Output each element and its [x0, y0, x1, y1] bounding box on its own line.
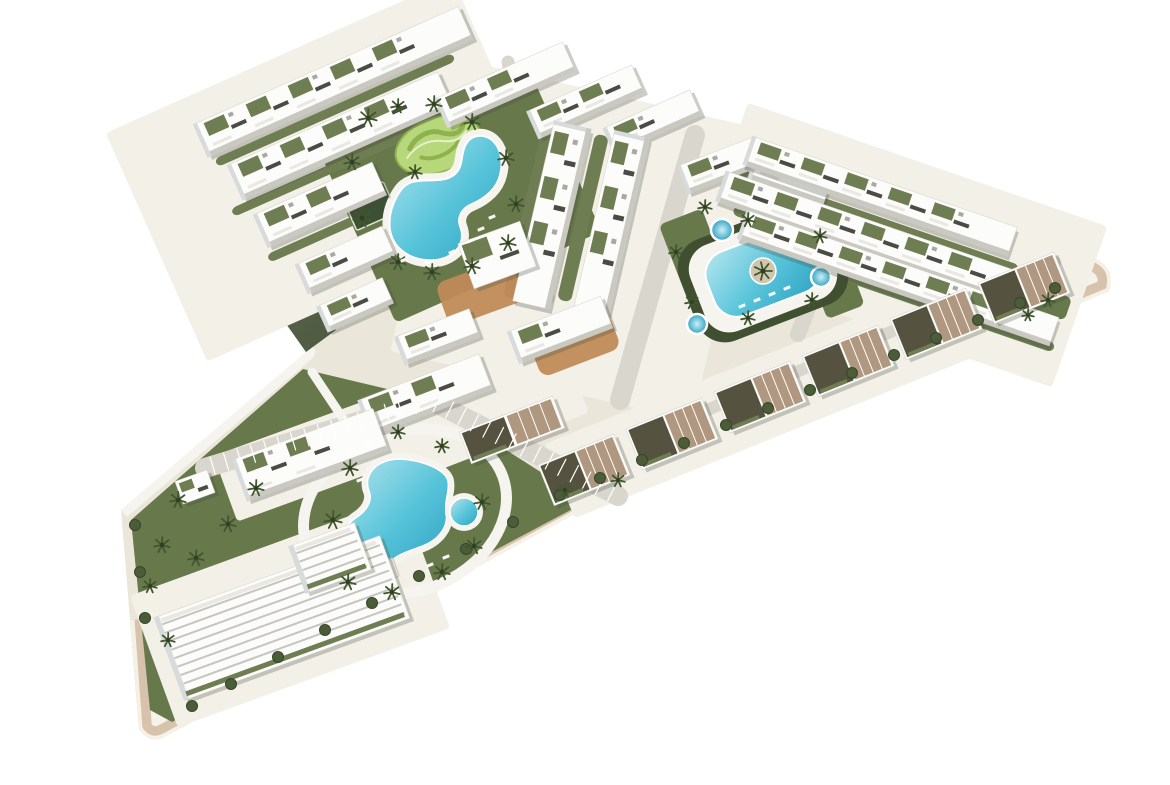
palm-crown	[194, 556, 198, 560]
palm-crown	[472, 544, 476, 548]
palm-crown	[440, 570, 444, 574]
bush	[508, 517, 519, 528]
palm-crown	[396, 260, 400, 264]
bush	[973, 315, 984, 326]
bush	[679, 438, 690, 449]
bush	[130, 520, 141, 531]
palm-crown	[432, 102, 436, 106]
palm-crown	[348, 466, 352, 470]
palm-crown	[504, 156, 508, 160]
palm-crown	[148, 584, 152, 588]
palm-crown	[359, 215, 364, 220]
bush	[889, 350, 900, 361]
palm-crown	[440, 444, 444, 448]
palm-crown	[413, 170, 417, 174]
architectural-rendering	[0, 0, 1170, 785]
palm-crown	[746, 316, 750, 320]
palm-crown	[160, 543, 164, 547]
bush	[187, 701, 198, 712]
palm-crown	[514, 202, 518, 206]
bush	[135, 567, 146, 578]
bush	[763, 403, 774, 414]
palm-crown	[1046, 298, 1050, 302]
palm-crown	[506, 241, 510, 245]
palm-crown	[470, 264, 474, 268]
palm-crown	[746, 218, 750, 222]
palm-crown	[365, 115, 370, 120]
round-pool	[450, 498, 478, 526]
palm-crown	[350, 160, 354, 164]
bush	[414, 571, 425, 582]
palm-crown	[616, 478, 620, 482]
bush	[1050, 283, 1061, 294]
bush	[226, 679, 237, 690]
palm-crown	[1026, 313, 1029, 316]
palm-crown	[176, 498, 180, 502]
palm-crown	[390, 590, 394, 594]
bush	[320, 625, 331, 636]
palm-crown	[480, 500, 484, 504]
bush	[721, 420, 732, 431]
bush	[847, 368, 858, 379]
palm-crown	[346, 580, 350, 584]
bush	[1015, 298, 1026, 309]
site-plan-svg	[0, 0, 1170, 785]
palm-crown	[690, 300, 694, 304]
bush	[595, 473, 606, 484]
palm-crown	[254, 486, 258, 490]
palm-crown	[810, 298, 814, 302]
spa-pool	[711, 219, 733, 241]
bush	[637, 455, 648, 466]
bush	[140, 613, 151, 624]
palm-crown	[396, 104, 400, 108]
bush	[273, 652, 284, 663]
palm-crown	[674, 250, 678, 254]
palm-crown	[818, 234, 822, 238]
bush	[805, 385, 816, 396]
palm-crown	[761, 269, 766, 274]
palm-crown	[563, 488, 567, 492]
spa-pool	[687, 314, 707, 334]
palm-crown	[470, 120, 474, 124]
palm-crown	[226, 522, 230, 526]
bush	[931, 333, 942, 344]
palm-crown	[330, 517, 335, 522]
palm-crown	[166, 638, 170, 642]
palm-crown	[703, 205, 707, 209]
palm-crown	[430, 270, 434, 274]
bush	[367, 598, 378, 609]
palm-crown	[396, 430, 400, 434]
